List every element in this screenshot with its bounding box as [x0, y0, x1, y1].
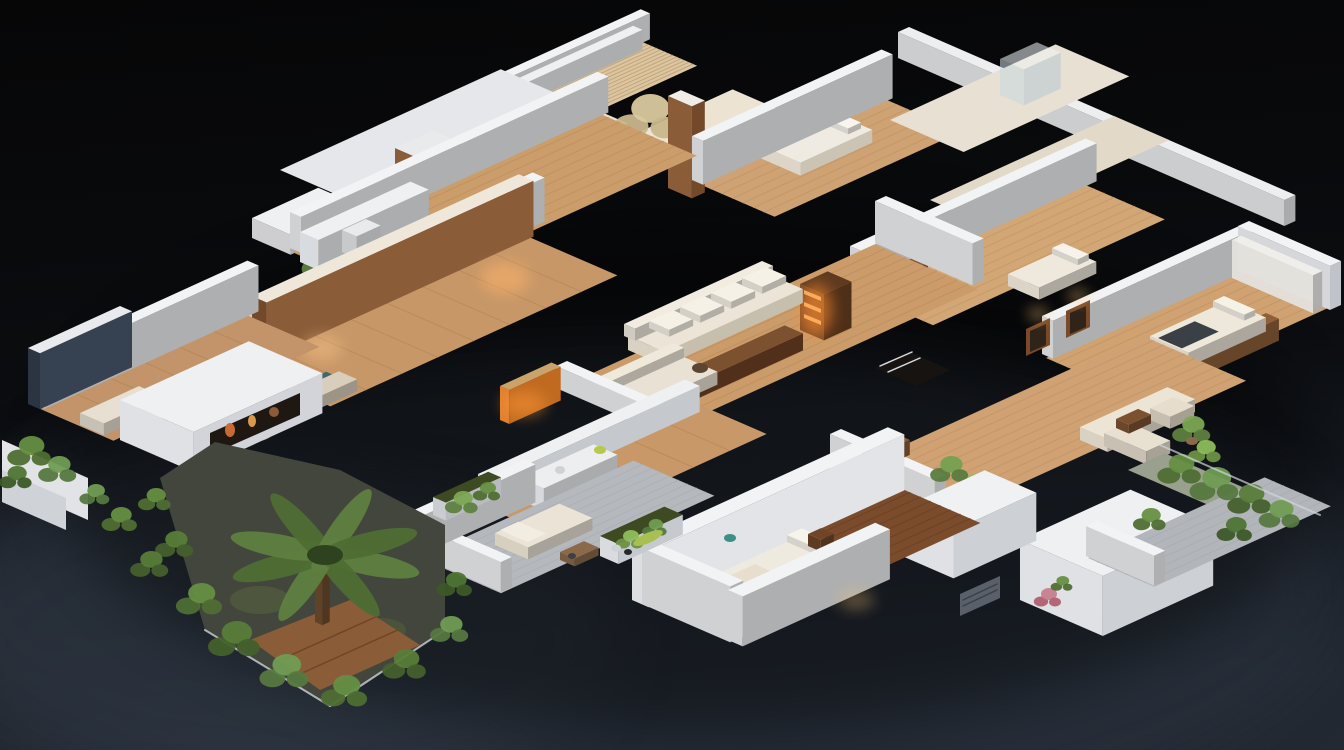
entry-grass-1 [32, 451, 51, 465]
balcony-hedge-6 [1151, 519, 1165, 530]
balcony-hedge-3 [1252, 499, 1271, 513]
wall-living-right-side-face [973, 238, 984, 285]
kitchen-sink [555, 466, 565, 474]
courtyard-hedge-3 [287, 671, 309, 687]
pink-flower-bush [1049, 598, 1061, 607]
courtyard-hedge-5 [407, 664, 426, 678]
media-shelf-item-3 [269, 407, 279, 417]
terrace-planter-bush-2 [488, 492, 500, 501]
floorplan-render [0, 0, 1344, 750]
balcony-hedge-1 [1182, 469, 1201, 483]
courtyard-hedge-11 [96, 494, 109, 504]
balcony-hedge-2 [1217, 484, 1239, 500]
palm-tree-core [307, 545, 343, 565]
balcony-small-tree [1206, 451, 1220, 462]
courtyard-hedge-10 [121, 519, 137, 531]
lime-bowl [594, 446, 606, 454]
window-curtains-side-face [1313, 271, 1322, 313]
courtyard-hedge-1 [202, 599, 222, 614]
courtyard-hedge-2 [237, 639, 260, 656]
wall-terrace-front-side-face [501, 557, 512, 592]
decor-tray [692, 363, 708, 373]
wall-hedge-terrace-front-side-face [1154, 551, 1165, 586]
courtyard-hedge-4 [347, 691, 367, 706]
media-shelf-item-1 [225, 423, 235, 437]
floorplan-stage [0, 0, 1344, 750]
wall-living-upper-front-face [692, 136, 703, 185]
sconce-glow-1 [1028, 308, 1048, 320]
wall-upperleft-top-front-face [290, 212, 301, 253]
sconce-glow-2 [1068, 290, 1088, 302]
hall-plant-pot [1186, 437, 1198, 445]
planter-stone-1 [611, 545, 621, 552]
entry-grass-2 [59, 469, 76, 482]
terrace-planter-bush-1 [463, 502, 477, 513]
flower-green-bush [1063, 584, 1073, 591]
wall-outer-topright-side-face [1284, 195, 1295, 226]
balcony-hedge-4 [1282, 514, 1300, 528]
courtyard-hedge-7 [456, 584, 472, 596]
media-shelf-item-2 [248, 415, 256, 427]
wall-master-right-front-face [728, 590, 743, 646]
courtyard-hedge-9 [156, 499, 170, 510]
teal-decor-item [724, 534, 736, 542]
courtyard-hedge-6 [451, 629, 468, 642]
terrace-table-decor [568, 553, 576, 559]
wardrobe-glow [481, 262, 529, 294]
balcony-hedge-5 [1236, 529, 1252, 541]
wall-outer-right-side-face [1330, 261, 1341, 310]
navy-accent-panel-front-face [28, 348, 40, 409]
courtyard-hedge-12 [151, 564, 168, 577]
planter-stone-2 [624, 549, 632, 555]
entry-grass-3 [17, 477, 31, 488]
courtyard-hedge-8 [176, 544, 193, 557]
master-lamp-glow [838, 590, 874, 610]
louver-glow [502, 392, 546, 416]
